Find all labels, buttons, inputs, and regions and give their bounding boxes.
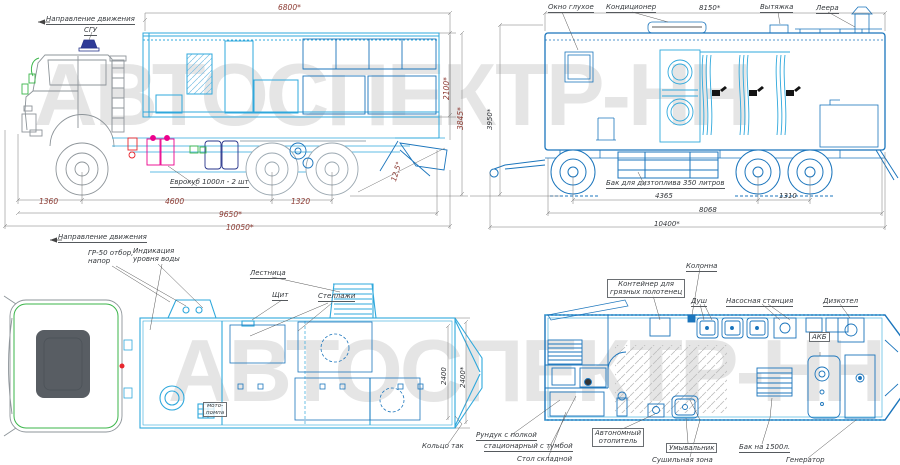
water-tank-label: Бак на 1500л. — [739, 443, 790, 453]
side-view-drawing — [3, 11, 468, 229]
dim-4600: 4600 — [165, 197, 184, 206]
dim-2400-inner: 2400 — [440, 367, 448, 385]
fuel-tank-label: Бак для дизтоплива 350 литров — [606, 179, 725, 189]
shield-label: Щит — [272, 291, 288, 301]
plan-view-drawing — [4, 237, 482, 444]
ladder-label: Лестница — [250, 269, 286, 279]
vent-label: Вытяжка — [760, 3, 793, 13]
water-indicator-label: Индикация уровня воды — [133, 247, 180, 264]
dim-1320: 1320 — [291, 197, 310, 206]
eurocube-label: Еврокуб 1000л - 2 шт — [170, 178, 249, 188]
locker-label-line2: стационарный с тумбой — [484, 442, 573, 452]
shower-label: Душ — [691, 297, 707, 307]
dim-2400: 2400* — [459, 367, 467, 388]
battery-label: АКБ — [809, 332, 830, 342]
ac-label: Кондиционер — [606, 3, 656, 13]
blind-window-label: Окно глухое — [548, 3, 594, 13]
dim-10050: 10050* — [226, 223, 254, 232]
heater-label: Автономный отопитель — [592, 428, 644, 447]
sink-label: Умывальник — [666, 443, 717, 453]
pump-station-label: Насосная станция — [726, 297, 793, 307]
rigging-ring-label: Кольцо так — [422, 442, 464, 450]
dim-10400: 10400* — [654, 220, 680, 228]
folding-table-label: Стол складной — [517, 455, 572, 463]
dim-8068: 8068 — [699, 206, 717, 214]
dim-8150: 8150* — [699, 4, 720, 12]
sgu-label: СГУ — [84, 26, 97, 36]
curb-view-drawing — [470, 7, 898, 230]
dim-1360: 1360 — [39, 197, 58, 206]
motor-pump-label: мото- помпа — [203, 402, 227, 417]
drying-zone-label: Сушильная зона — [652, 456, 713, 464]
towel-container-label: Контейнер для грязных полотенец — [607, 279, 685, 298]
column-label: Колонна — [686, 262, 717, 272]
dim-1310: 1310 — [779, 192, 797, 200]
direction-label-top: Направление движения — [46, 15, 135, 25]
direction-label-bottom: Направление движения — [58, 233, 147, 243]
generator-label: Генератор — [786, 456, 825, 464]
dim-4365: 4365 — [655, 192, 673, 200]
dim-3950: 3950* — [486, 109, 494, 130]
rails-label: Леера — [816, 4, 839, 14]
gr50-label: ГР-50 отбор, напор — [88, 249, 133, 266]
dim-6800: 6800* — [278, 3, 301, 12]
shelves-label: Стеллажи — [318, 292, 355, 302]
drawing-sheet: АВТОСПЕКТР-НН АВТОСПЕКТР-НН — [0, 0, 900, 465]
dim-3845: 3845* — [456, 107, 465, 130]
dim-2100: 2100* — [442, 77, 451, 100]
diesel-boiler-label: Дизкотел — [823, 297, 858, 307]
locker-label-line1: Рундук с полкой — [476, 431, 537, 441]
dim-9650: 9650* — [219, 210, 242, 219]
